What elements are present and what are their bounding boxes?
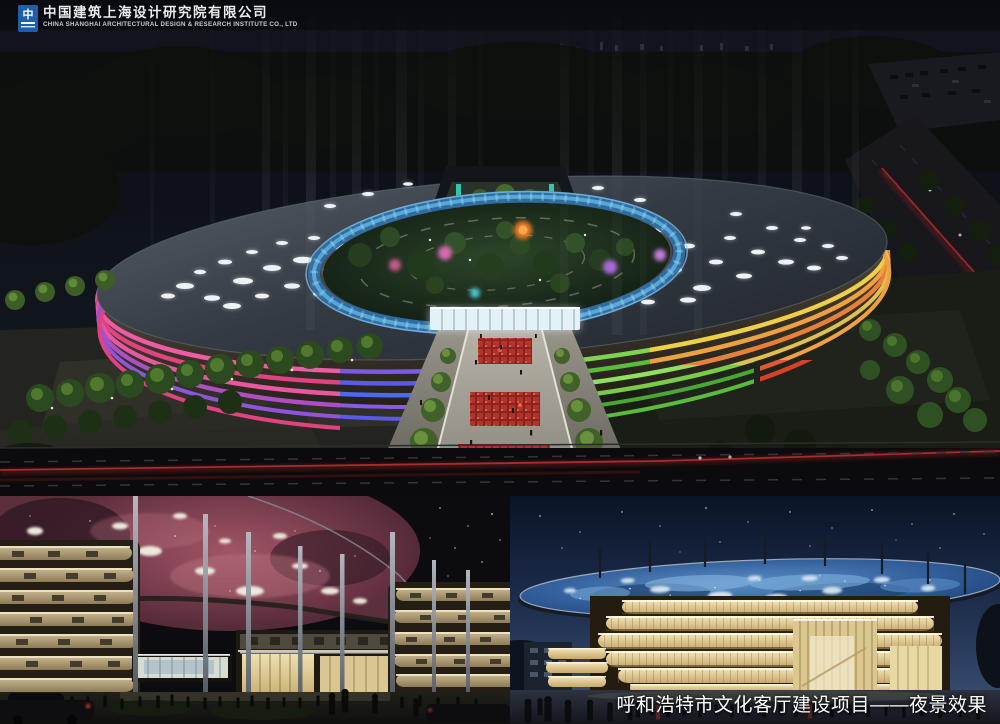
glass-lobby-bridge: [132, 654, 232, 682]
company-logo: 中 中国建筑上海设计研究院有限公司 CHINA SHANGHAI ARCHITE…: [18, 5, 453, 32]
central-glass-atrium: [793, 619, 877, 692]
main-aerial-rendering: [0, 0, 1000, 496]
presentation-board: 中 中国建筑上海设计研究院有限公司 CHINA SHANGHAI ARCHITE…: [0, 0, 1000, 724]
cscec-square-logo-icon: 中: [18, 5, 38, 32]
parked-car-right: [426, 704, 510, 722]
center-pavilions: [236, 630, 406, 696]
company-name-en: CHINA SHANGHAI ARCHITECTURAL DESIGN & RE…: [43, 21, 297, 28]
svg-text:中: 中: [23, 7, 34, 21]
left-curved-building: [0, 540, 140, 704]
right-curved-building: [388, 582, 510, 702]
right-entry-glass: [890, 646, 942, 690]
front-road: [0, 442, 1000, 496]
west-annex-buildings: [524, 642, 608, 692]
golden-band-building: [590, 596, 950, 694]
entrance-glass-bridge: [430, 307, 580, 330]
ground-view-nebula-rendering: [0, 496, 510, 724]
project-caption: 呼和浩特市文化客厅建设项目——夜景效果: [616, 690, 987, 717]
company-name-zh: 中国建筑上海设计研究院有限公司: [43, 5, 453, 20]
